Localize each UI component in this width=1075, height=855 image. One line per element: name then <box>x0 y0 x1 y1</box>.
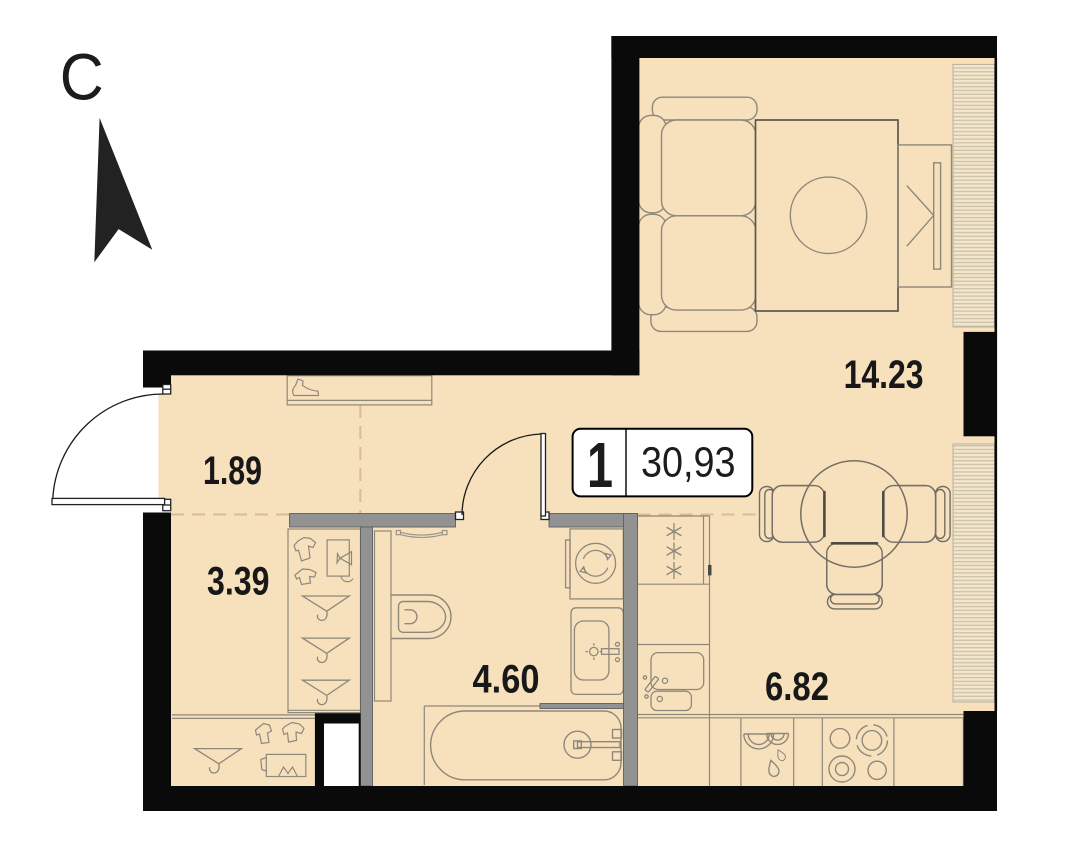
svg-text:14.23: 14.23 <box>844 353 924 397</box>
svg-text:3.39: 3.39 <box>207 560 270 604</box>
svg-text:1: 1 <box>587 429 613 501</box>
svg-text:1.89: 1.89 <box>203 449 262 493</box>
svg-text:С: С <box>60 40 104 114</box>
svg-text:6.82: 6.82 <box>765 665 829 709</box>
svg-text:4.60: 4.60 <box>473 658 540 702</box>
svg-text:30,93: 30,93 <box>641 439 736 487</box>
